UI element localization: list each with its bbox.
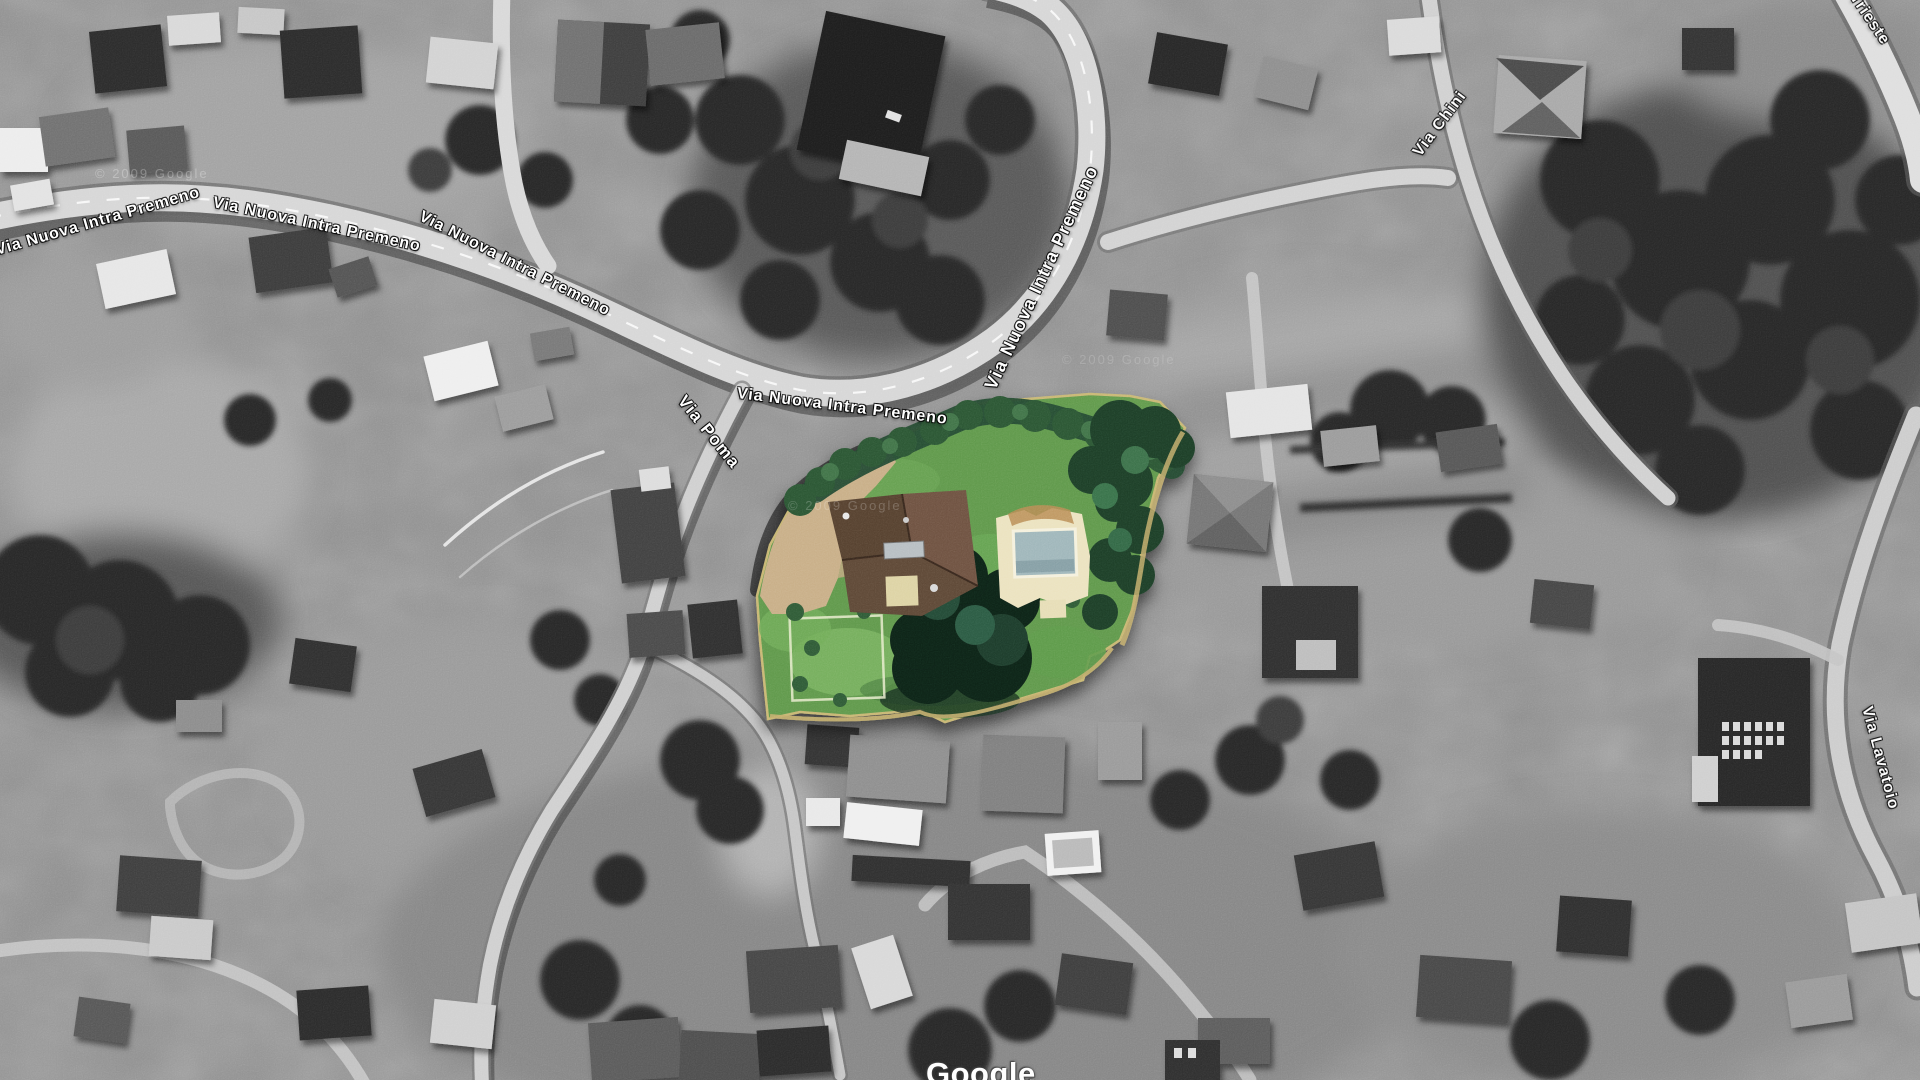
grain-overlay — [0, 0, 1920, 1080]
google-logo[interactable]: Google — [926, 1056, 1036, 1080]
copyright-watermark: © 2009 Google — [95, 166, 209, 181]
copyright-watermark: © 2009 Google — [788, 498, 902, 513]
satellite-map-canvas[interactable] — [0, 0, 1920, 1080]
map-viewport[interactable]: Via Nuova Intra Premeno Via Nuova Intra … — [0, 0, 1920, 1080]
copyright-watermark: © 2009 Google — [1062, 352, 1176, 367]
